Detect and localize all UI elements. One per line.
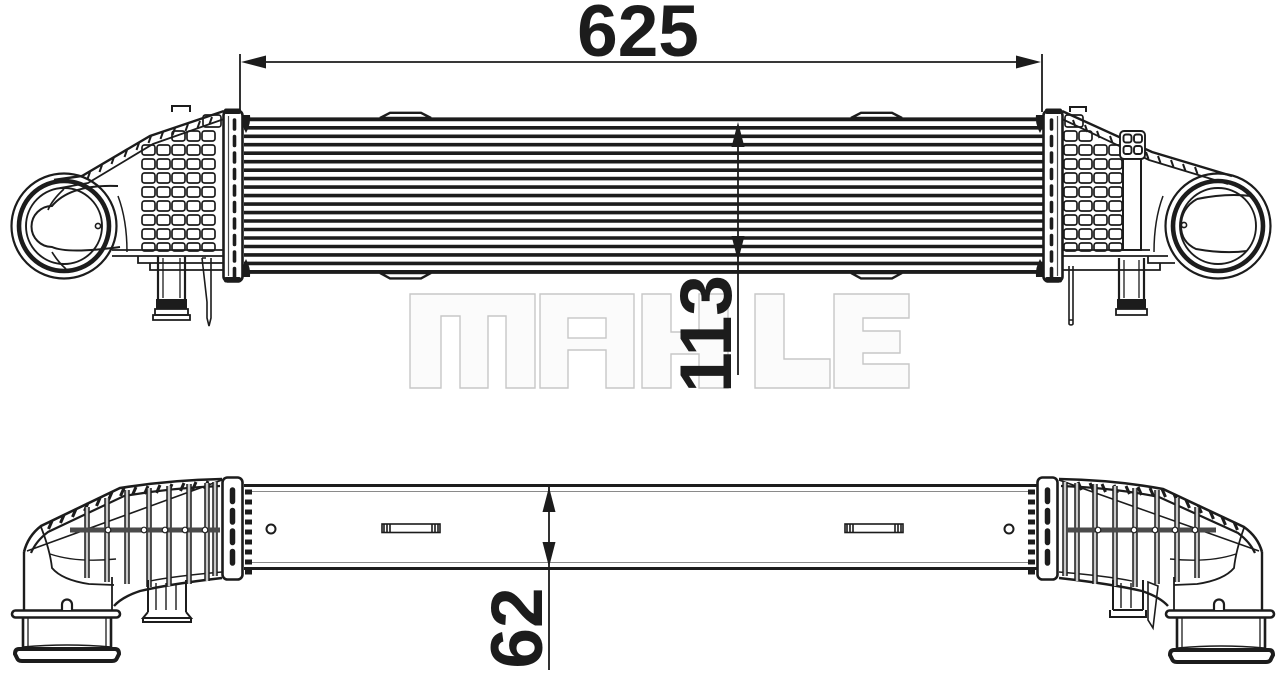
svg-text:625: 625 bbox=[577, 0, 699, 72]
svg-text:62: 62 bbox=[477, 587, 558, 668]
svg-text:113: 113 bbox=[666, 275, 747, 393]
